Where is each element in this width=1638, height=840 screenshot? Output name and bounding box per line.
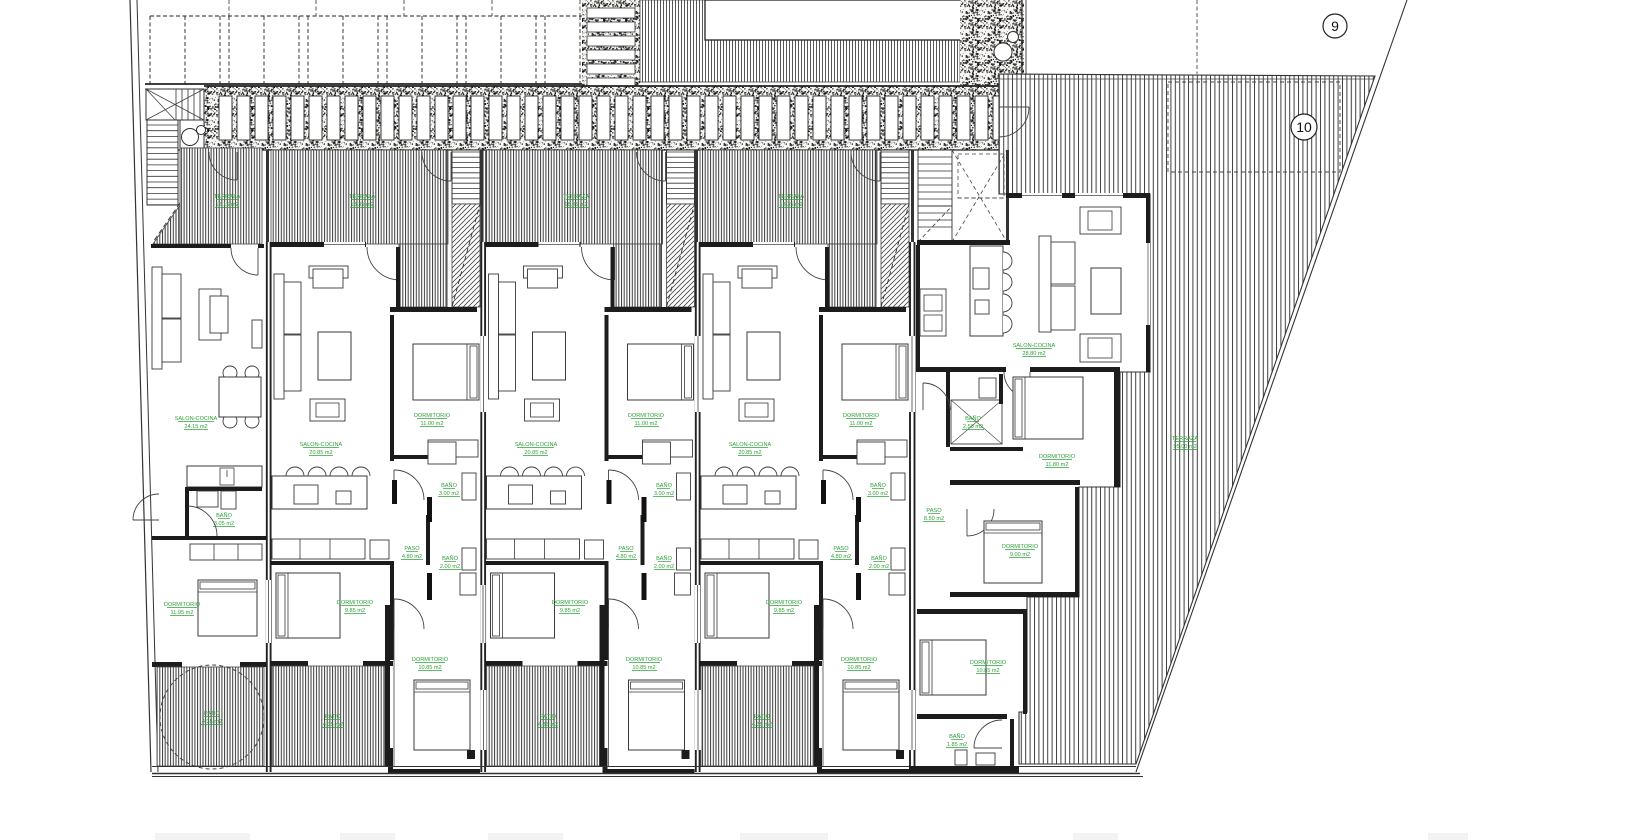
svg-text:PASO: PASO (618, 546, 634, 552)
svg-text:10.85 m2: 10.85 m2 (976, 668, 999, 674)
svg-text:DORMITORIO: DORMITORIO (414, 413, 451, 419)
svg-text:3.00 m2: 3.00 m2 (868, 491, 888, 497)
svg-text:BAÑO: BAÑO (870, 482, 887, 489)
svg-text:9.85 m2: 9.85 m2 (560, 608, 580, 614)
svg-text:20.85 m2: 20.85 m2 (524, 450, 547, 456)
svg-text:PATIO: PATIO (204, 711, 221, 717)
svg-text:3.00 m2: 3.00 m2 (439, 491, 459, 497)
svg-text:20.85 m2: 20.85 m2 (309, 450, 332, 456)
svg-text:9.85 m2: 9.85 m2 (774, 608, 794, 614)
svg-text:4.35 m2: 4.35 m2 (538, 722, 558, 728)
svg-text:SALON-COCINA: SALON-COCINA (300, 442, 343, 448)
svg-text:9: 9 (1331, 18, 1339, 34)
svg-text:2.00 m2: 2.00 m2 (440, 564, 460, 570)
svg-text:12.15 m2: 12.15 m2 (215, 202, 238, 208)
svg-text:DORMITORIO: DORMITORIO (337, 600, 374, 606)
svg-text:DORMITORIO: DORMITORIO (1039, 454, 1076, 460)
svg-text:9.00 m2: 9.00 m2 (1010, 552, 1030, 558)
svg-text:11.00 m2: 11.00 m2 (850, 421, 873, 427)
svg-text:4.80 m2: 4.80 m2 (831, 554, 851, 560)
svg-text:2.00 m2: 2.00 m2 (869, 564, 889, 570)
svg-text:PASO: PASO (926, 508, 942, 514)
svg-text:PATIO: PATIO (325, 714, 342, 720)
svg-text:TERRAZA: TERRAZA (563, 194, 589, 200)
svg-text:10: 10 (1296, 119, 1312, 135)
svg-text:PASO: PASO (833, 546, 849, 552)
svg-text:TERRAZA: TERRAZA (778, 194, 804, 200)
svg-text:4.80 m2: 4.80 m2 (616, 554, 636, 560)
svg-text:BAÑO: BAÑO (656, 482, 673, 489)
svg-text:TERRAZA: TERRAZA (1172, 436, 1198, 442)
svg-text:10.85 m2: 10.85 m2 (632, 665, 655, 671)
svg-text:SALON-COCINA: SALON-COCINA (515, 442, 558, 448)
svg-text:BAÑO: BAÑO (442, 555, 459, 562)
svg-text:4.35 m2: 4.35 m2 (323, 722, 343, 728)
svg-text:BAÑO: BAÑO (949, 733, 966, 740)
svg-text:3.05 m2: 3.05 m2 (214, 521, 234, 527)
svg-text:DORMITORIO: DORMITORIO (626, 657, 663, 663)
svg-text:2.00 m2: 2.00 m2 (654, 564, 674, 570)
svg-text:DORMITORIO: DORMITORIO (1002, 544, 1039, 550)
svg-text:PATIO: PATIO (540, 714, 557, 720)
svg-text:10.85 m2: 10.85 m2 (847, 665, 870, 671)
svg-text:11.00 m2: 11.00 m2 (421, 421, 444, 427)
svg-text:18.35 m2: 18.35 m2 (779, 202, 802, 208)
svg-text:1.85 m2: 1.85 m2 (947, 742, 967, 748)
svg-text:DORMITORIO: DORMITORIO (628, 413, 665, 419)
svg-text:DORMITORIO: DORMITORIO (843, 413, 880, 419)
svg-text:BAÑO: BAÑO (441, 482, 458, 489)
svg-text:18.35 m2: 18.35 m2 (564, 202, 587, 208)
svg-text:SALON-COCINA: SALON-COCINA (729, 442, 772, 448)
svg-text:DORMITORIO: DORMITORIO (766, 600, 803, 606)
svg-text:PASO: PASO (404, 546, 420, 552)
svg-text:PATIO: PATIO (754, 714, 771, 720)
svg-text:BAÑO: BAÑO (216, 512, 233, 519)
svg-text:24.15 m2: 24.15 m2 (184, 424, 207, 430)
svg-text:11.80 m2: 11.80 m2 (1046, 462, 1069, 468)
svg-text:4.80 m2: 4.80 m2 (402, 554, 422, 560)
svg-text:11.95 m2: 11.95 m2 (171, 610, 194, 616)
svg-text:DORMITORIO: DORMITORIO (970, 660, 1007, 666)
svg-text:28.80 m2: 28.80 m2 (1022, 351, 1045, 357)
svg-text:4.35 m2: 4.35 m2 (752, 722, 772, 728)
svg-text:11.00 m2: 11.00 m2 (635, 421, 658, 427)
svg-text:8.50 m2: 8.50 m2 (924, 516, 944, 522)
svg-text:DORMITORIO: DORMITORIO (552, 600, 589, 606)
svg-text:TERRAZA: TERRAZA (349, 194, 375, 200)
svg-text:DORMITORIO: DORMITORIO (841, 657, 878, 663)
svg-text:DORMITORIO: DORMITORIO (412, 657, 449, 663)
svg-text:BAÑO: BAÑO (871, 555, 888, 562)
svg-text:3.00 m2: 3.00 m2 (654, 491, 674, 497)
svg-text:SALON-COCINA: SALON-COCINA (1013, 343, 1056, 349)
svg-text:SALON-COCINA: SALON-COCINA (175, 416, 218, 422)
svg-text:18.35 m2: 18.35 m2 (350, 202, 373, 208)
svg-text:10.85 m2: 10.85 m2 (418, 665, 441, 671)
svg-text:20.85 m2: 20.85 m2 (738, 450, 761, 456)
svg-text:9.85 m2: 9.85 m2 (345, 608, 365, 614)
svg-text:2.50 m2: 2.50 m2 (963, 424, 983, 430)
svg-text:BAÑO: BAÑO (656, 555, 673, 562)
svg-text:BAÑO: BAÑO (965, 415, 982, 422)
svg-text:95.00 m2: 95.00 m2 (1173, 444, 1196, 450)
svg-text:4.35 m2: 4.35 m2 (202, 719, 222, 725)
svg-text:DORMITORIO: DORMITORIO (164, 602, 201, 608)
svg-text:TERRAZA: TERRAZA (214, 194, 240, 200)
